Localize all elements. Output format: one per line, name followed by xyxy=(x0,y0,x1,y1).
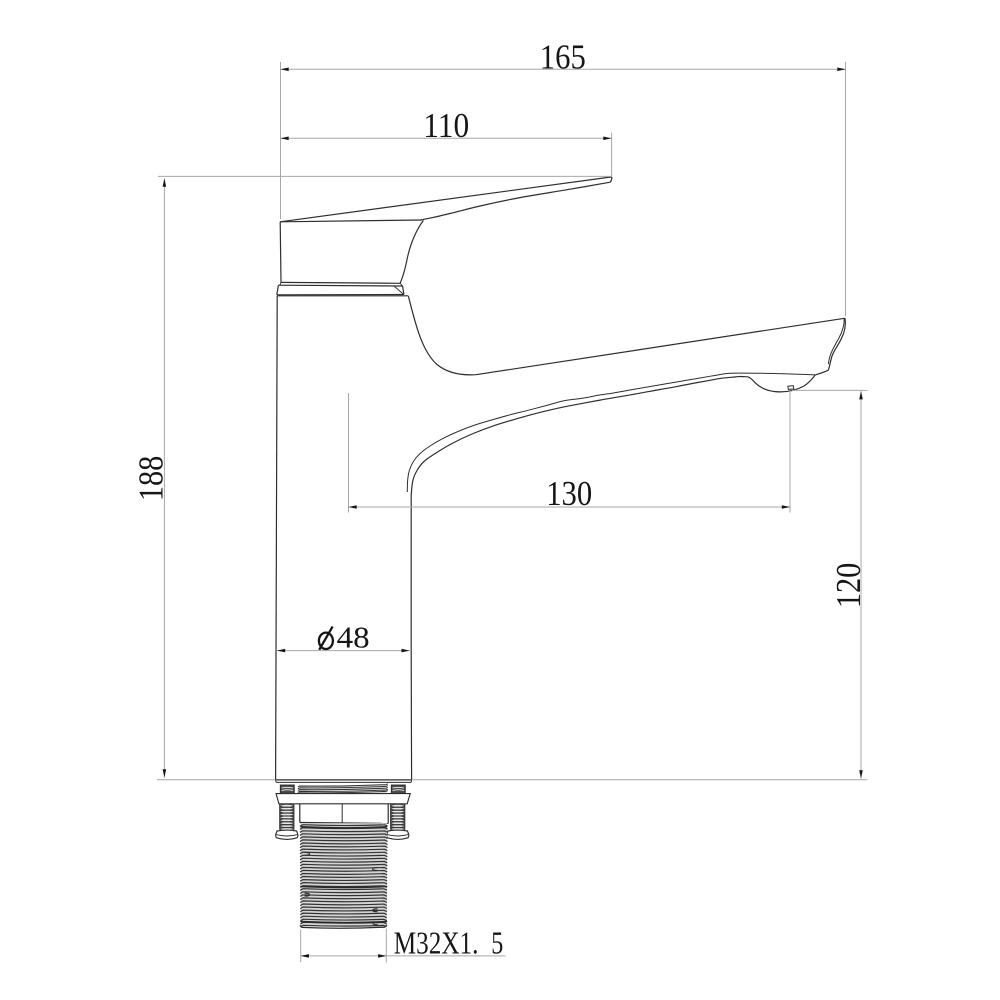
svg-text:165: 165 xyxy=(540,38,586,77)
svg-text:5: 5 xyxy=(491,925,503,961)
svg-text:130: 130 xyxy=(546,474,592,513)
svg-text:188: 188 xyxy=(132,456,171,502)
svg-text:M32X1.: M32X1. xyxy=(394,925,479,961)
svg-text:48: 48 xyxy=(337,619,370,654)
svg-text:110: 110 xyxy=(423,106,469,145)
svg-text:120: 120 xyxy=(829,563,868,609)
